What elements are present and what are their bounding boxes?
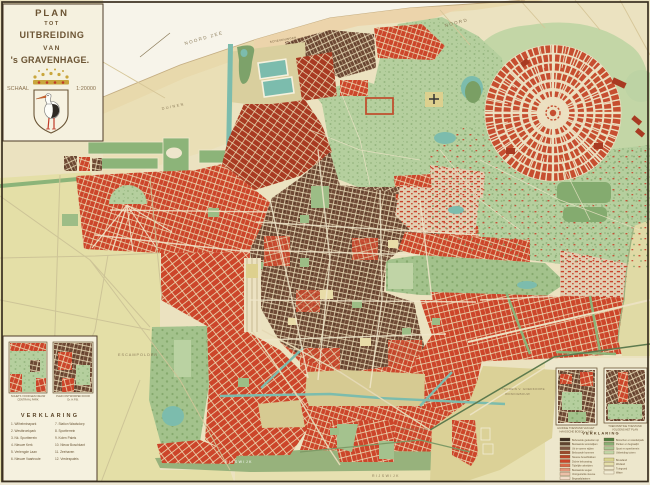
svg-text:NIEUWE AANLEG: NIEUWE AANLEG [400, 427, 429, 431]
svg-text:VERKLARING: VERKLARING [21, 413, 79, 419]
svg-text:HUIDIGE TOESTAND VAN HET: HUIDIGE TOESTAND VAN HET [557, 426, 595, 430]
svg-text:PLAN: PLAN [35, 8, 69, 19]
svg-text:'s GRAVENHAGE.: 's GRAVENHAGE. [11, 55, 90, 65]
svg-text:Bouwland: Bouwland [616, 459, 628, 462]
svg-text:Sport en speelterrein: Sport en speelterrein [616, 447, 640, 450]
svg-text:ESCAMPOLDER: ESCAMPOLDER [118, 353, 158, 357]
svg-text:PLEIN ONTWORPEN DOOR: PLEIN ONTWORPEN DOOR [56, 394, 90, 398]
svg-text:7. Station Waalsdorp: 7. Station Waalsdorp [55, 422, 85, 426]
svg-text:Water: Water [616, 472, 623, 475]
svg-text:3. Nk. Sportterrein: 3. Nk. Sportterrein [11, 436, 37, 440]
svg-text:Bebouwde gedeelten op: Bebouwde gedeelten op [572, 439, 600, 442]
svg-text:9. Kolen Paleis: 9. Kolen Paleis [55, 436, 77, 440]
svg-text:2. Westbroekpark: 2. Westbroekpark [11, 429, 36, 433]
svg-text:Tuingrond: Tuingrond [616, 467, 628, 470]
svg-text:RIJSWIJK: RIJSWIJK [225, 460, 253, 464]
svg-text:WONINGBOUW: WONINGBOUW [505, 392, 530, 396]
svg-text:5. Verlengde Laan: 5. Verlengde Laan [11, 450, 37, 454]
svg-text:VAN: VAN [43, 45, 61, 52]
svg-text:8. Sportterrein: 8. Sportterrein [55, 429, 75, 433]
svg-text:Nieuwe bouwblokken: Nieuwe bouwblokken [572, 456, 596, 459]
svg-text:10. Nieuw Boschkant: 10. Nieuw Boschkant [55, 443, 85, 447]
svg-text:TOEKOMSTIGE TOESTAND: TOEKOMSTIGE TOESTAND [608, 424, 642, 428]
svg-text:CENTRAAL PARK: CENTRAAL PARK [17, 398, 39, 402]
svg-text:SCHAAL: SCHAAL [7, 86, 29, 92]
svg-text:12. Vredespaleis: 12. Vredespaleis [55, 457, 79, 461]
svg-text:TOT: TOT [44, 21, 59, 27]
svg-text:4. Nieuwe Kerk: 4. Nieuwe Kerk [11, 443, 33, 447]
svg-text:RIJSWIJK: RIJSWIJK [372, 474, 400, 478]
svg-text:Bosschen en wandelpark: Bosschen en wandelpark [616, 439, 645, 442]
svg-text:Weiland: Weiland [616, 463, 626, 466]
svg-text:6. Nieuwe Vaartroute: 6. Nieuwe Vaartroute [11, 457, 41, 461]
svg-text:Dr. H.P.B.: Dr. H.P.B. [67, 398, 78, 402]
svg-text:Begraafplaatsen: Begraafplaatsen [572, 478, 591, 481]
svg-text:Dichte bebouwing: Dichte bebouwing [572, 460, 592, 463]
svg-text:Bestaande wegen: Bestaande wegen [572, 469, 593, 472]
svg-text:Uit te voeren wijken: Uit te voeren wijken [572, 447, 594, 450]
svg-text:VERKLARING: VERKLARING [582, 431, 619, 436]
svg-text:1. Wilhelminapark: 1. Wilhelminapark [11, 422, 37, 426]
svg-text:UITBREIDING: UITBREIDING [19, 30, 84, 40]
svg-text:TERREIN V. GOEDKOOPE: TERREIN V. GOEDKOOPE [502, 387, 545, 391]
svg-text:11. Zeehaven: 11. Zeehaven [55, 450, 74, 454]
svg-text:Bebouwde kommen: Bebouwde kommen [572, 452, 595, 455]
svg-text:Tijdelijke arbeiders: Tijdelijke arbeiders [572, 465, 593, 468]
svg-text:SCHETS VOOR EEN NIEUW: SCHETS VOOR EEN NIEUW [11, 394, 46, 398]
svg-text:Parken en begraafpl.: Parken en begraafpl. [616, 443, 640, 446]
svg-text:1:20000: 1:20000 [76, 86, 96, 92]
svg-text:Voorgestelde nieuwe: Voorgestelde nieuwe [572, 473, 596, 476]
svg-text:Uitbreiding tuinen: Uitbreiding tuinen [616, 452, 636, 455]
svg-text:Bestaande woonwijken: Bestaande woonwijken [572, 443, 598, 446]
